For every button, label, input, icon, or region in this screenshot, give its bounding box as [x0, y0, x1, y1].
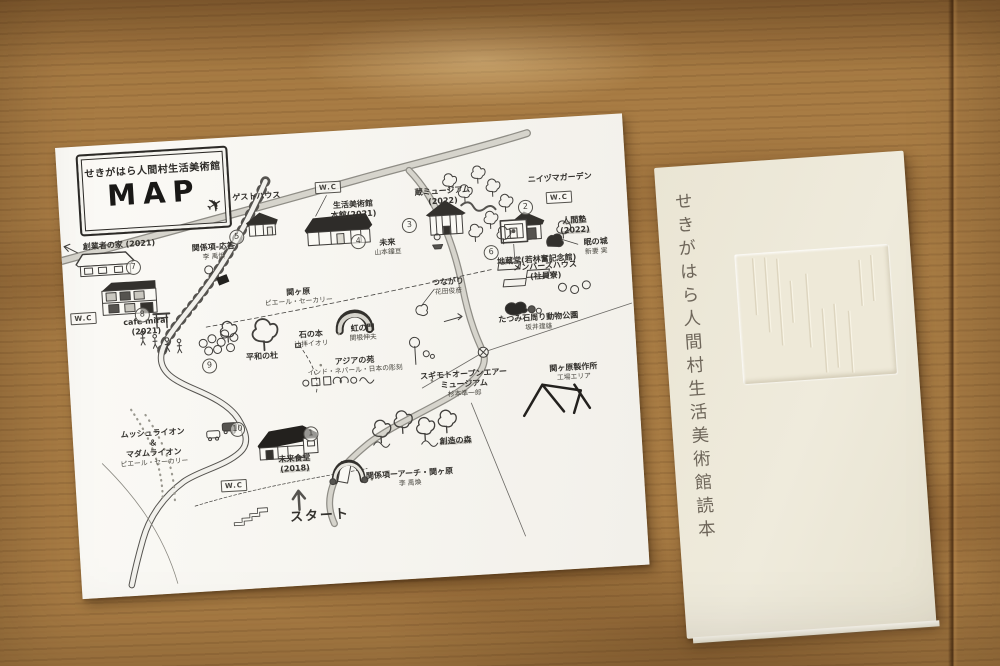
start-arrow: [292, 490, 305, 510]
map-trails: [92, 261, 647, 587]
map-label-main-museum: 生活美術館 本館(2021): [330, 199, 377, 222]
booklet-emboss-artwork: [734, 244, 897, 384]
stairs: [233, 508, 268, 526]
tsunagari-sculpture: [416, 304, 428, 316]
wc-box-ningenjuku: W.C: [546, 191, 573, 205]
map-label-mirai-shokudo: 未来食堂 (2018): [278, 453, 311, 475]
start-arch: [329, 460, 368, 485]
map-label-creation-forest: 創造の森: [439, 435, 472, 447]
map-label-kura-museum: 蔵ミュージアム (2022): [414, 185, 470, 208]
map-label-stone-book: 石の本辻拝イオリ: [294, 329, 329, 350]
table-plank-seam: [948, 0, 958, 666]
booklet-cover: せきがはら人間村生活美術館読本: [654, 151, 936, 639]
map-label-members-house: メンバーズハウス (社員寮): [513, 259, 578, 283]
map-label-lions: ムッシュライオン ＆ マダムライオンピエール・セーカリー: [118, 427, 188, 470]
map-title-box: せきがはら人間村生活美術館 MAP ✈: [75, 145, 232, 236]
photo-scene: せきがはら人間村生活美術館 MAP ✈ ゲストハウス 生活美術館 本館(2021…: [0, 0, 1000, 666]
map-label-sugimoto-museum: スギモトオープンエアー ミュージアム杉本準一郎: [420, 367, 509, 401]
map-label-factory: 関ヶ原製作所工場エリア: [549, 361, 598, 382]
map-label-nemuri-no-shiro: 眠の城新妻 実: [583, 236, 608, 256]
cafe-mirai-building: [101, 280, 157, 315]
mirai-sculpture: [432, 234, 443, 250]
map-label-rainbow-gate: 虹の門関根伸夫: [349, 323, 377, 343]
peace-grove-stones: [198, 329, 238, 355]
emboss-lines: [734, 244, 897, 384]
map-label-mirai-sculpture: 未来山本鐘亘: [374, 237, 402, 257]
label-bullets: [318, 327, 440, 483]
pole-sculpture: [409, 337, 421, 365]
map-label-kankeiko-outo: 関係項-応答李 禹煥: [191, 241, 235, 262]
wc-box-cafe-mirai: W.C: [70, 312, 97, 326]
factory-frame: [522, 382, 590, 416]
wc-box-mirai-shokudo: W.C: [221, 479, 248, 493]
map-label-peace-grove: 平和の杜: [246, 351, 279, 363]
wc-box-main-museum: W.C: [315, 181, 342, 195]
map-label-tsunagari: つながり花田俊彦: [432, 276, 465, 296]
map-label-ningenjuku: 人間塾 (2022): [559, 215, 590, 237]
map-paper: せきがはら人間村生活美術館 MAP ✈ ゲストハウス 生活美術館 本館(2021…: [55, 113, 650, 599]
